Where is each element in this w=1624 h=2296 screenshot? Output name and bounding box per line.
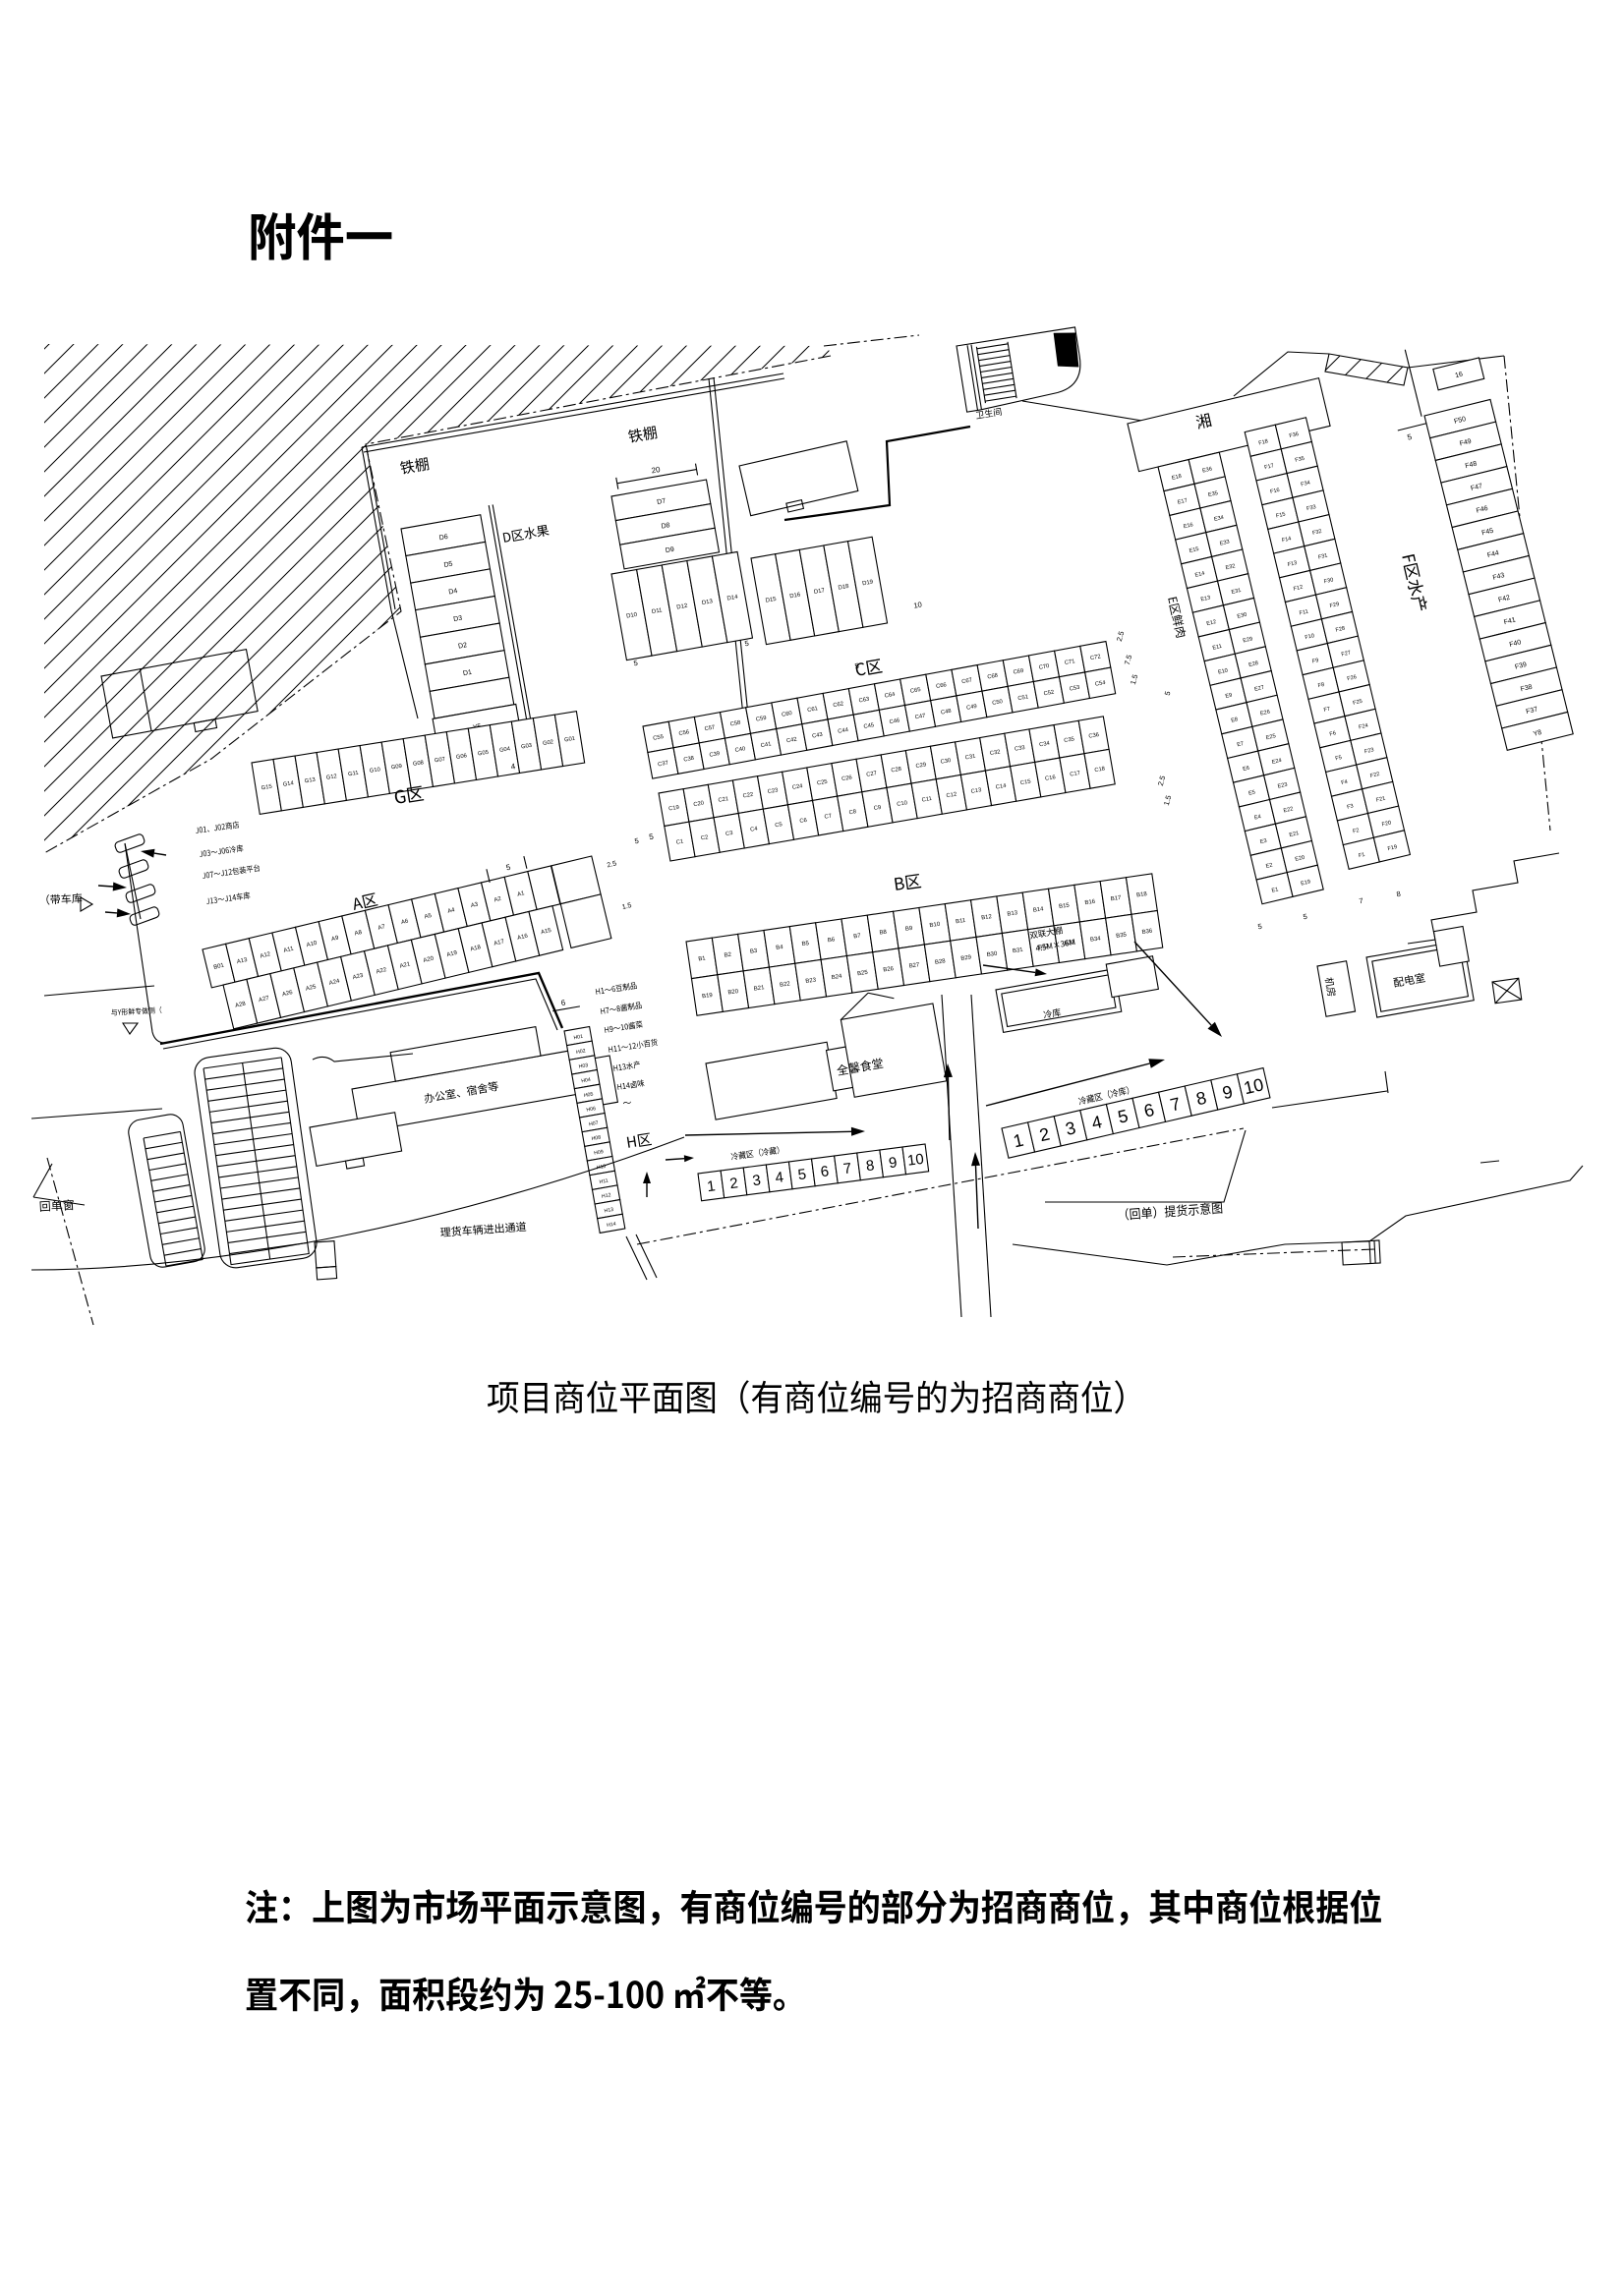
svg-text:C5: C5 <box>775 822 783 829</box>
svg-text:10: 10 <box>913 600 923 609</box>
svg-text:C3: C3 <box>725 831 733 837</box>
svg-text:C9: C9 <box>873 805 881 812</box>
svg-text:C2: C2 <box>701 834 709 841</box>
svg-text:C7: C7 <box>824 814 832 821</box>
svg-text:10: 10 <box>906 1151 925 1170</box>
svg-text:C8: C8 <box>848 809 856 816</box>
svg-text:C6: C6 <box>799 818 807 825</box>
svg-text:C1: C1 <box>675 839 683 846</box>
